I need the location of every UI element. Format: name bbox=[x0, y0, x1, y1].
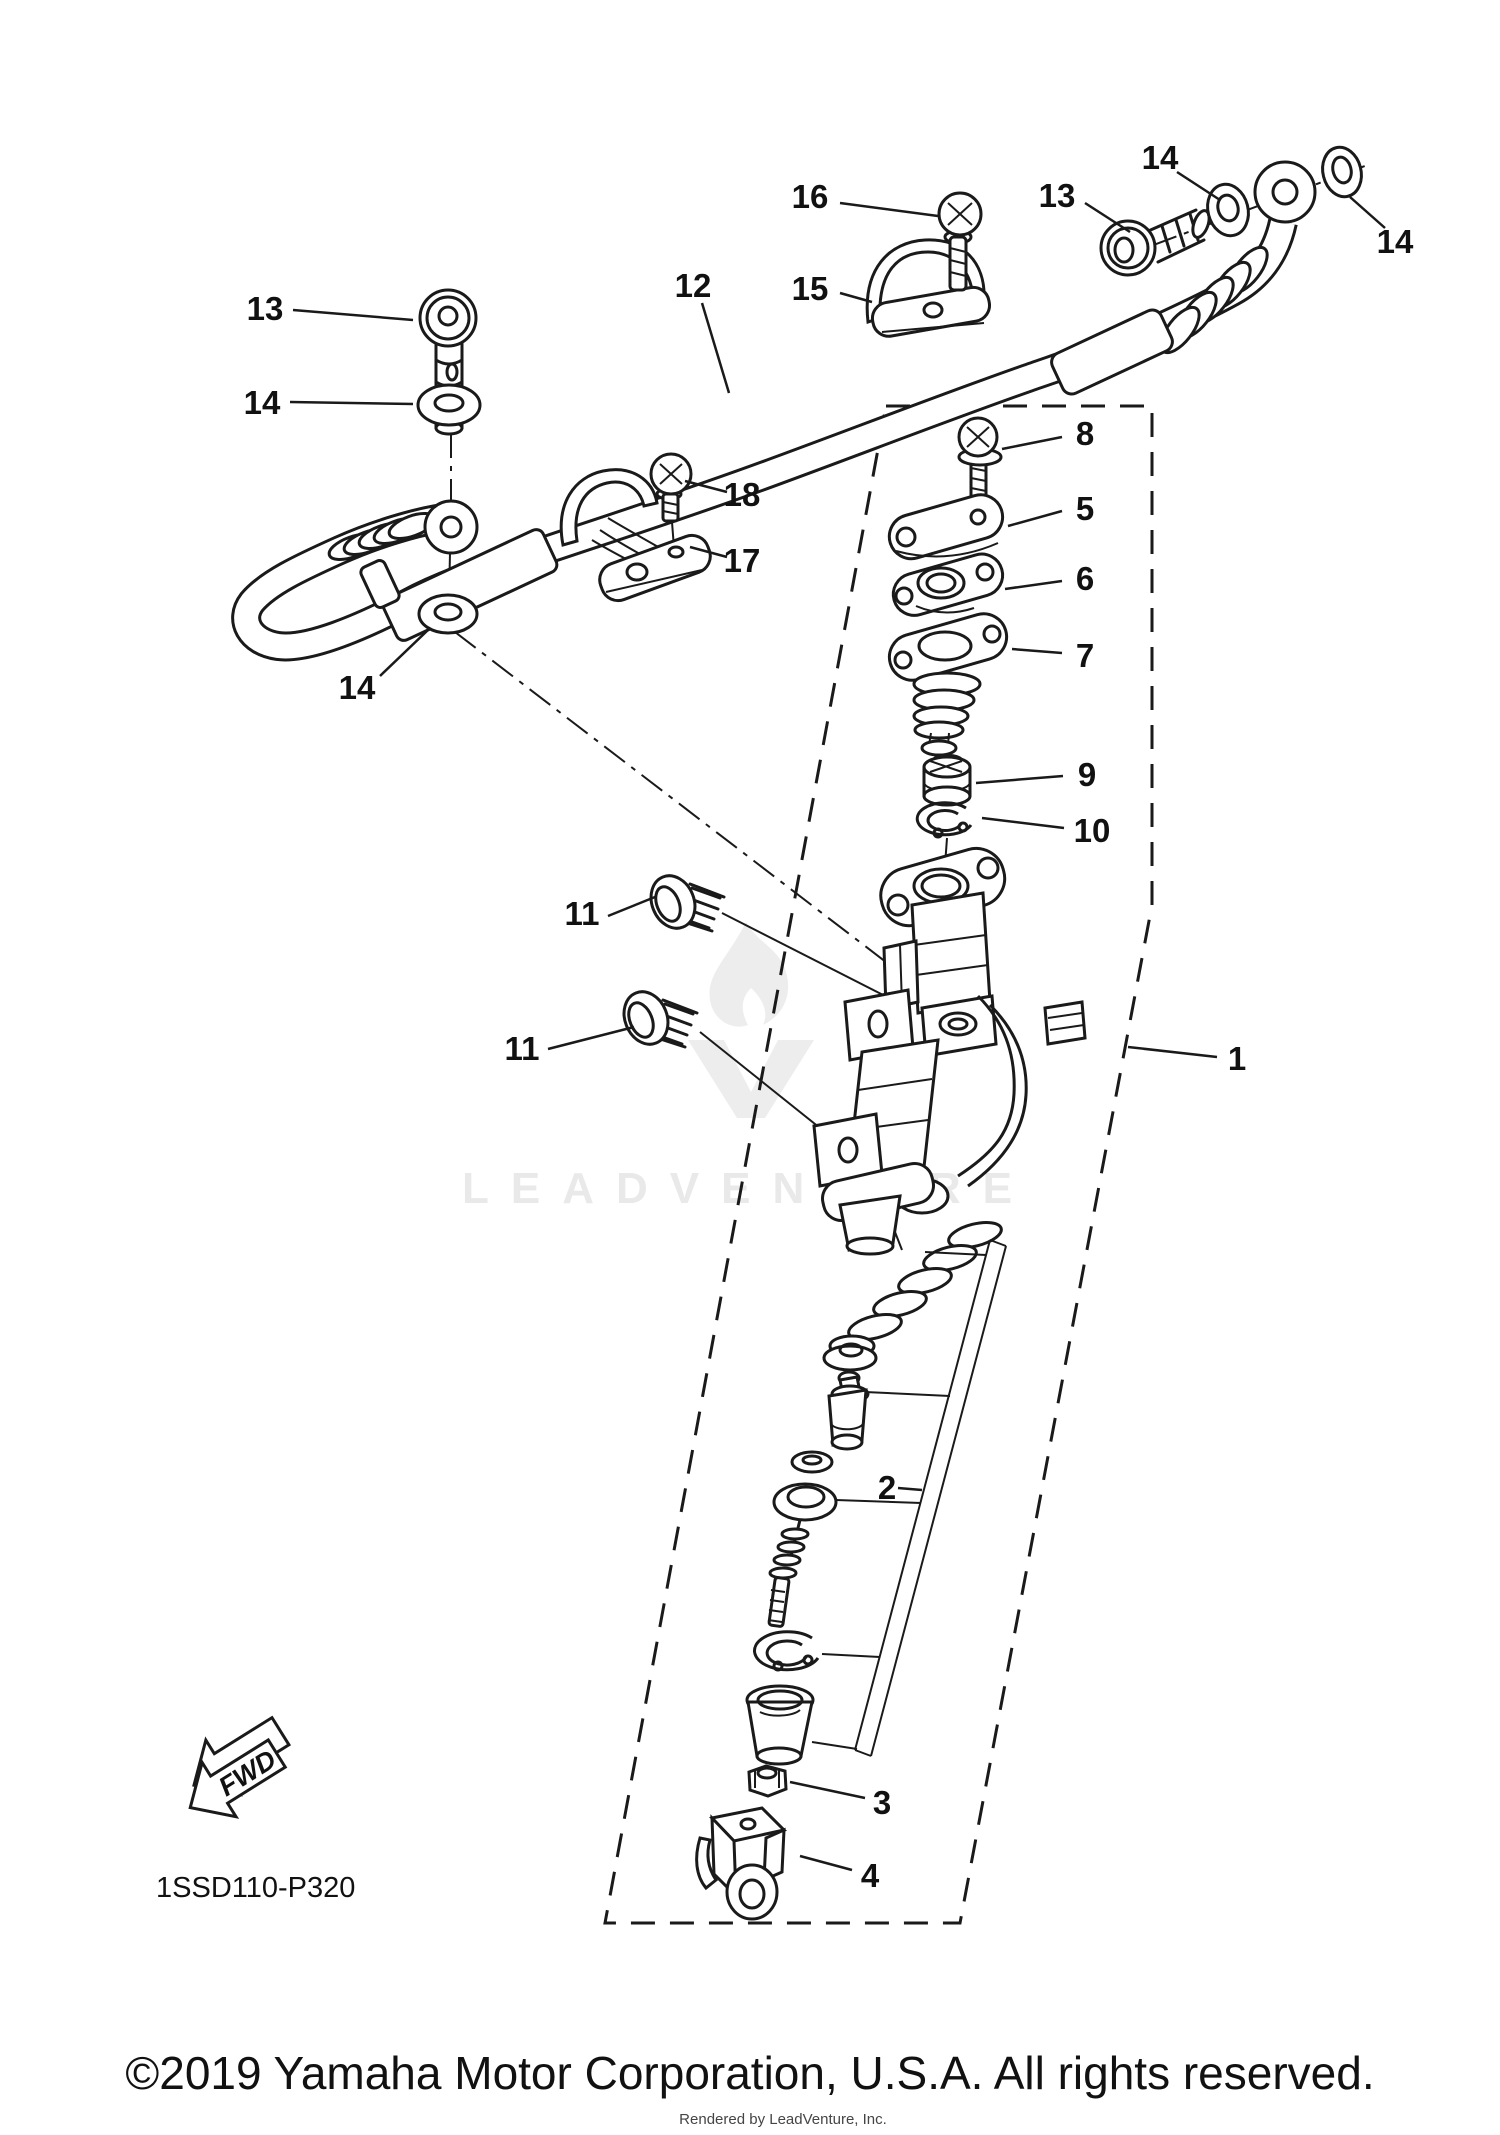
part-callout-4[interactable]: 4 bbox=[861, 1857, 880, 1894]
mount-screw-11-upper bbox=[643, 869, 724, 935]
leader-line bbox=[293, 310, 413, 320]
leader-line bbox=[702, 303, 729, 393]
washer-left-upper bbox=[418, 385, 480, 425]
part-callout-14[interactable]: 14 bbox=[339, 669, 376, 706]
leader-line bbox=[840, 203, 938, 216]
leader-line bbox=[800, 1856, 852, 1870]
leader-line bbox=[790, 1782, 865, 1798]
part-callout-5[interactable]: 5 bbox=[1076, 490, 1094, 527]
part-callout-14[interactable]: 14 bbox=[244, 384, 281, 421]
leader-line bbox=[1005, 581, 1062, 589]
part-callout-3[interactable]: 3 bbox=[873, 1784, 891, 1821]
part-callout-14[interactable]: 14 bbox=[1377, 223, 1414, 260]
watermark-text: LEADVENTURE bbox=[462, 1164, 1034, 1213]
leader-line bbox=[608, 897, 655, 916]
check-valve-9 bbox=[924, 755, 970, 805]
banjo-bolt-top bbox=[1101, 208, 1212, 275]
part-callout-16[interactable]: 16 bbox=[792, 178, 829, 215]
part-callout-13[interactable]: 13 bbox=[1039, 177, 1076, 214]
part-callout-2[interactable]: 2 bbox=[878, 1469, 896, 1506]
leader-line bbox=[898, 1488, 922, 1490]
part-callout-8[interactable]: 8 bbox=[1076, 415, 1094, 452]
rendered-by-text: Rendered by LeadVenture, Inc. bbox=[679, 2111, 887, 2128]
part-callout-18[interactable]: 18 bbox=[724, 476, 761, 513]
leader-line bbox=[548, 1027, 634, 1049]
leader-line bbox=[1128, 1047, 1217, 1057]
circlip-10 bbox=[917, 803, 971, 837]
part-callout-7[interactable]: 7 bbox=[1076, 637, 1094, 674]
hose-sleeve-upper bbox=[1048, 307, 1175, 398]
mount-screw-11-lower bbox=[616, 985, 697, 1051]
copyright-text: ©2019 Yamaha Motor Corporation, U.S.A. A… bbox=[125, 2047, 1374, 2099]
hose-end-crimp bbox=[359, 559, 401, 610]
parts-diagram-page: LEADVENTURE bbox=[0, 0, 1500, 2135]
reservoir-cover-5 bbox=[884, 490, 1008, 564]
washer-left-lower bbox=[419, 595, 477, 633]
leader-line bbox=[290, 402, 413, 404]
part-callout-17[interactable]: 17 bbox=[724, 542, 761, 579]
part-callout-1[interactable]: 1 bbox=[1228, 1040, 1246, 1077]
exploded-diagram-canvas: LEADVENTURE bbox=[0, 0, 1500, 2135]
hose-eyelet-lower bbox=[425, 501, 477, 553]
hose-clamp-upper bbox=[867, 240, 992, 339]
part-callout-11[interactable]: 11 bbox=[505, 1030, 540, 1067]
part-callout-11[interactable]: 11 bbox=[565, 895, 600, 932]
repair-kit-2 bbox=[747, 1218, 1004, 1764]
leadventure-watermark-logo bbox=[688, 922, 814, 1118]
part-callout-12[interactable]: 12 bbox=[675, 267, 712, 304]
cap-screw-8 bbox=[959, 418, 1001, 500]
leader-line bbox=[1002, 437, 1062, 449]
pushrod-nut-3 bbox=[749, 1766, 786, 1796]
hose-eyelet-upper bbox=[1255, 162, 1315, 222]
fwd-arrow: FWD bbox=[164, 1704, 306, 1835]
part-callout-10[interactable]: 10 bbox=[1074, 812, 1111, 849]
leader-line bbox=[1085, 203, 1130, 232]
leader-line bbox=[1008, 511, 1062, 526]
leader-line bbox=[976, 776, 1063, 783]
diagram-code: 1SSD110-P320 bbox=[156, 1872, 355, 1904]
diaphragm-7 bbox=[884, 608, 1012, 755]
part-callout-9[interactable]: 9 bbox=[1078, 756, 1096, 793]
leader-line bbox=[982, 818, 1064, 828]
clevis-4 bbox=[697, 1808, 784, 1919]
leader-line bbox=[1177, 172, 1220, 200]
part-callout-15[interactable]: 15 bbox=[792, 270, 829, 307]
kit-bracket bbox=[812, 1240, 1006, 1756]
part-callout-14[interactable]: 14 bbox=[1142, 139, 1179, 176]
part-callout-13[interactable]: 13 bbox=[247, 290, 284, 327]
washer-top-left bbox=[1202, 180, 1253, 240]
part-callout-6[interactable]: 6 bbox=[1076, 560, 1094, 597]
leader-line bbox=[1012, 649, 1062, 653]
diaphragm-holder-6 bbox=[888, 549, 1007, 620]
washer-top-right bbox=[1318, 143, 1367, 201]
